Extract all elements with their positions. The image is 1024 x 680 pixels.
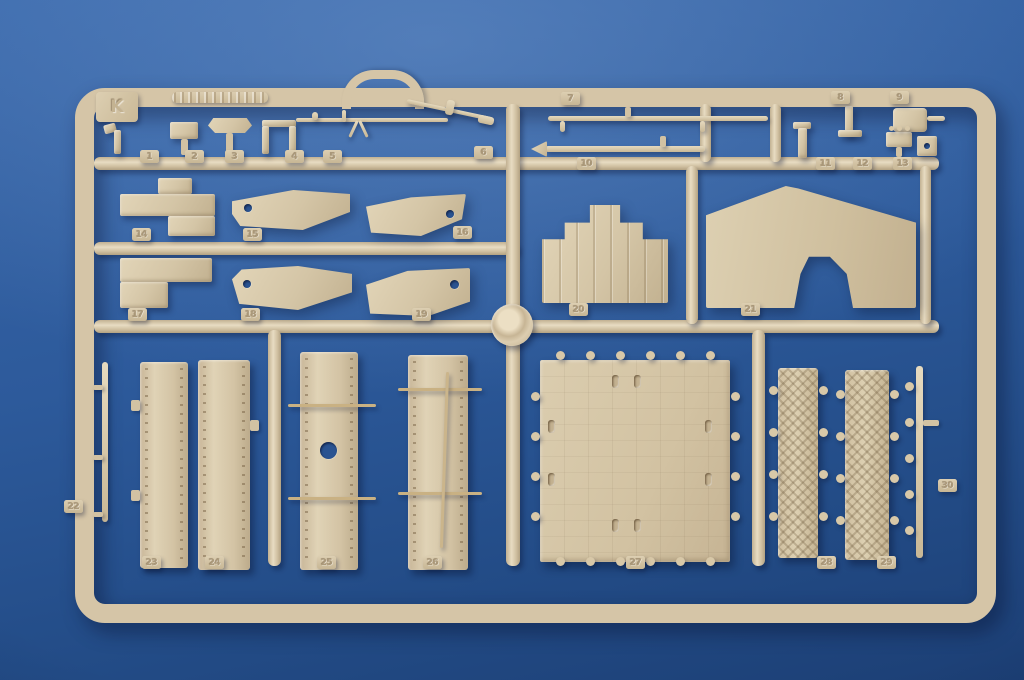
part-15-hole bbox=[244, 204, 252, 212]
part-23-panel bbox=[140, 362, 188, 568]
part-27-gate-pegs-bottom bbox=[556, 557, 565, 566]
part-25-thin-rod bbox=[288, 404, 376, 407]
part-27-gate-pegs-right bbox=[731, 392, 740, 401]
part-5-gun-barrel bbox=[296, 118, 448, 122]
part-27-gate-pegs-left bbox=[531, 392, 540, 401]
part-27-slot bbox=[705, 420, 712, 433]
part-11-post bbox=[798, 128, 807, 158]
part-18-wrap bbox=[232, 266, 352, 310]
part-number-tag: 23 bbox=[142, 556, 161, 569]
part-7-rod bbox=[548, 116, 768, 121]
part-24-tab bbox=[250, 420, 259, 431]
part-number-tag: 20 bbox=[569, 303, 588, 316]
part-26-thin-rod bbox=[398, 388, 482, 391]
part-number-tag: 21 bbox=[741, 303, 760, 316]
part-20-wrap bbox=[542, 205, 668, 303]
part-24-panel bbox=[198, 360, 250, 570]
part-27-slot bbox=[612, 519, 619, 532]
part-28-pegs-right bbox=[819, 386, 828, 395]
part-22-gate bbox=[93, 385, 103, 390]
part-number-tag: 17 bbox=[128, 308, 147, 321]
part-number-tag: 8 bbox=[831, 91, 850, 104]
part-5-gun-detail bbox=[342, 110, 346, 122]
part-number-tag: 26 bbox=[423, 556, 442, 569]
part-19-hole bbox=[450, 280, 459, 289]
part-number-tag: 5 bbox=[323, 150, 342, 163]
part-10-gate bbox=[660, 136, 666, 147]
part-number-tag: 1 bbox=[140, 150, 159, 163]
runner-top-right-b bbox=[770, 104, 781, 162]
part-9-box bbox=[893, 108, 927, 132]
runner-mid-right-b bbox=[920, 166, 931, 324]
runner-bottom-b bbox=[752, 330, 765, 566]
part-7-peg bbox=[560, 121, 565, 132]
part-27-slot bbox=[705, 473, 712, 486]
part-number-tag: 29 bbox=[877, 556, 896, 569]
part-number-tag: 9 bbox=[890, 91, 909, 104]
part-29-pegs-left bbox=[836, 390, 845, 399]
part-9-stub bbox=[927, 116, 945, 121]
part-2-block bbox=[170, 122, 198, 139]
part-number-tag: 22 bbox=[64, 500, 83, 513]
part-number-tag: 18 bbox=[241, 308, 260, 321]
runner-mid-right-a bbox=[686, 166, 698, 324]
part-number-tag: 3 bbox=[225, 150, 244, 163]
part-number-tag: 19 bbox=[412, 308, 431, 321]
part-27-slot bbox=[634, 519, 641, 532]
part-18-wing bbox=[232, 266, 352, 310]
part-8-foot bbox=[838, 130, 862, 137]
part-number-tag: 14 bbox=[132, 228, 151, 241]
part-27-slot bbox=[548, 420, 555, 433]
part-27-gate-pegs-top bbox=[556, 351, 565, 360]
part-20-ribs bbox=[542, 205, 668, 303]
part-7-peg bbox=[700, 121, 705, 132]
part-number-tag: 2 bbox=[185, 150, 204, 163]
part-18-hole bbox=[243, 280, 251, 288]
part-number-tag: 7 bbox=[561, 92, 580, 105]
part-30-gate bbox=[923, 420, 939, 426]
part-30-comb-rod bbox=[916, 366, 923, 558]
runner-bottom-a bbox=[268, 330, 281, 566]
part-10-rod bbox=[545, 146, 705, 152]
part-28-pegs-left bbox=[769, 386, 778, 395]
sprue-letter-tab: K bbox=[96, 92, 138, 122]
part-21-roof bbox=[706, 186, 916, 308]
part-number-tag: 11 bbox=[816, 157, 835, 170]
runner-row2 bbox=[94, 242, 518, 255]
part-number-tag: 25 bbox=[317, 556, 336, 569]
part-14-step-lower bbox=[168, 216, 215, 236]
part-29-track-rail bbox=[845, 370, 889, 560]
part-21-wrap bbox=[706, 186, 916, 308]
part-28-track-rail bbox=[778, 368, 818, 558]
part-17-step-lower bbox=[120, 282, 168, 308]
part-23-tab bbox=[131, 400, 140, 411]
part-25-thin-rod bbox=[288, 497, 376, 500]
part-7-gate bbox=[625, 107, 631, 117]
part-number-tag: 30 bbox=[938, 479, 957, 492]
part-14-step-top bbox=[158, 178, 192, 194]
mold-text-ridges bbox=[172, 92, 268, 103]
part-27-slot bbox=[634, 375, 641, 388]
part-number-tag: 24 bbox=[205, 556, 224, 569]
part-number-tag: 28 bbox=[817, 556, 836, 569]
part-14-step-main bbox=[120, 194, 215, 216]
part-20-bulkhead bbox=[542, 205, 668, 303]
part-25-hole bbox=[320, 442, 337, 459]
part-12-hole bbox=[924, 143, 930, 149]
part-number-tag: 16 bbox=[453, 226, 472, 239]
part-number-tag: 6 bbox=[474, 146, 493, 159]
part-3-plate bbox=[208, 118, 252, 133]
part-25-panel bbox=[300, 352, 358, 570]
part-22-gate bbox=[93, 512, 103, 517]
part-26-thin-rod bbox=[398, 492, 482, 495]
part-number-tag: 12 bbox=[853, 157, 872, 170]
part-22-gate bbox=[93, 455, 103, 460]
part-13-lugs bbox=[889, 126, 894, 131]
part-29-pegs-right bbox=[890, 390, 899, 399]
part-round-hub bbox=[491, 304, 533, 346]
part-number-tag: 15 bbox=[243, 228, 262, 241]
part-number-tag: 4 bbox=[285, 150, 304, 163]
part-number-tag: 10 bbox=[577, 157, 596, 170]
part-27-slot bbox=[612, 375, 619, 388]
part-13-gate bbox=[896, 147, 902, 157]
part-number-tag: 27 bbox=[626, 556, 645, 569]
part-5-gun-sight bbox=[312, 112, 318, 120]
part-23-tab bbox=[131, 490, 140, 501]
part-30-pegs bbox=[905, 382, 914, 391]
runner-top-right-a bbox=[700, 104, 711, 162]
sprue-photo: K bbox=[0, 0, 1024, 680]
part-4-bracket-leg bbox=[262, 126, 269, 154]
part-1-stem bbox=[114, 130, 121, 154]
part-13-bracket bbox=[886, 132, 912, 147]
part-27-slot bbox=[548, 473, 555, 486]
part-16-hole bbox=[446, 210, 454, 218]
part-17-step-main bbox=[120, 258, 212, 282]
part-number-tag: 13 bbox=[893, 157, 912, 170]
